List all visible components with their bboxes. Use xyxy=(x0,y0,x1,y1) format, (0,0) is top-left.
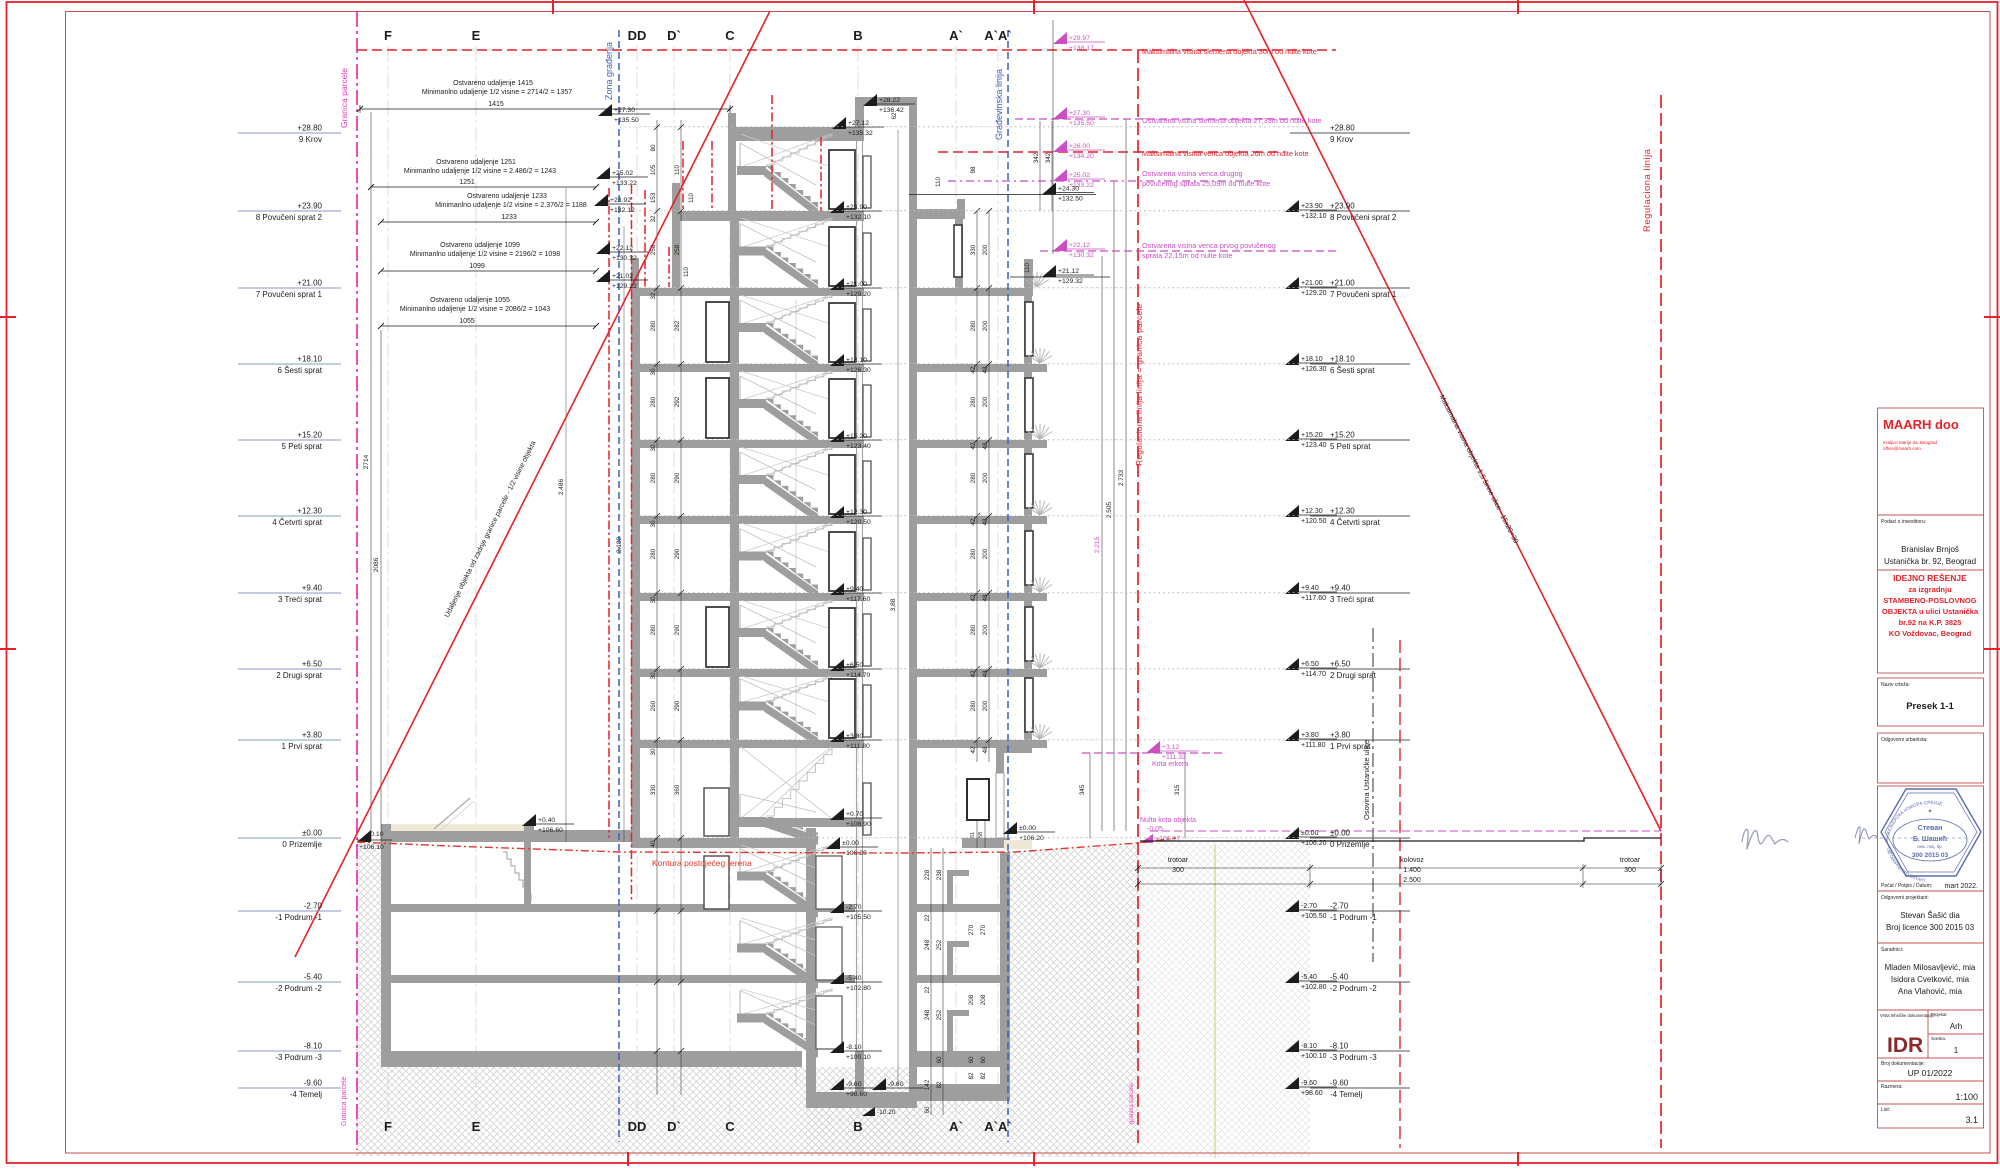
svg-text:+129.32: +129.32 xyxy=(1058,278,1083,285)
svg-text:Naziv crteža:: Naziv crteža: xyxy=(1881,682,1910,688)
svg-text:-5.40: -5.40 xyxy=(1330,973,1349,982)
svg-text:+12.30: +12.30 xyxy=(297,507,322,516)
svg-text:30: 30 xyxy=(650,444,657,452)
svg-text:Stevan Šašić dia: Stevan Šašić dia xyxy=(1900,911,1960,920)
svg-text:258: 258 xyxy=(650,244,657,255)
svg-text:+132.10: +132.10 xyxy=(1301,213,1327,220)
svg-text:300 2015 03: 300 2015 03 xyxy=(1912,852,1949,859)
svg-text:30: 30 xyxy=(650,520,657,528)
svg-text:Vrsta tehničke dokumentacije:: Vrsta tehničke dokumentacije: xyxy=(1880,1013,1936,1018)
svg-text:Стеван: Стеван xyxy=(1918,825,1943,832)
svg-text:+105.50: +105.50 xyxy=(1301,913,1327,920)
svg-text:3 Treći sprat: 3 Treći sprat xyxy=(278,595,323,604)
svg-text:40: 40 xyxy=(650,840,657,848)
svg-text:+98.60: +98.60 xyxy=(846,1091,867,1098)
svg-text:+28.22: +28.22 xyxy=(879,97,900,104)
svg-text:280: 280 xyxy=(970,320,977,331)
svg-text:200: 200 xyxy=(982,548,989,559)
svg-text:+25.02: +25.02 xyxy=(1069,172,1090,179)
svg-text:1415: 1415 xyxy=(488,101,504,108)
svg-text:1055: 1055 xyxy=(459,318,475,325)
svg-text:82: 82 xyxy=(980,1072,987,1080)
svg-text:B: B xyxy=(853,28,862,43)
svg-text:A`A`: A`A` xyxy=(984,1119,1011,1134)
svg-text:Odgovorni projektant:: Odgovorni projektant: xyxy=(1881,895,1929,901)
svg-text:32: 32 xyxy=(650,215,657,223)
svg-text:82: 82 xyxy=(936,1081,943,1089)
svg-text:+6.50: +6.50 xyxy=(302,660,323,669)
svg-text:+3.80: +3.80 xyxy=(1330,731,1351,740)
svg-text:2.733: 2.733 xyxy=(1118,469,1125,486)
svg-text:Kontura postojećeg terena: Kontura postojećeg terena xyxy=(652,858,752,868)
svg-text:-8.10: -8.10 xyxy=(1301,1043,1317,1050)
svg-text:Granica parcele: Granica parcele xyxy=(341,1076,348,1126)
svg-text:Minimanlno udaljenje 1/2 visin: Minimanlno udaljenje 1/2 visine = 2.376/… xyxy=(435,202,587,209)
svg-text:248: 248 xyxy=(924,1009,931,1020)
svg-text:Osovina Ustaničke ulice: Osovina Ustaničke ulice xyxy=(1362,740,1371,820)
svg-text:±0.00: ±0.00 xyxy=(1330,829,1351,838)
svg-text:E: E xyxy=(472,28,481,43)
svg-text:42: 42 xyxy=(970,518,977,526)
svg-text:48: 48 xyxy=(982,746,989,754)
svg-text:105: 105 xyxy=(650,164,657,175)
svg-text:200: 200 xyxy=(982,396,989,407)
svg-text:-9.60: -9.60 xyxy=(1330,1079,1349,1088)
svg-text:Regulaciona linija linija = gr: Regulaciona linija linija = granica parc… xyxy=(1134,304,1144,466)
svg-text:6 Šesti sprat: 6 Šesti sprat xyxy=(278,366,323,375)
svg-text:+22.12: +22.12 xyxy=(1069,242,1090,249)
svg-text:Isidora Cvetković, mia: Isidora Cvetković, mia xyxy=(1891,975,1970,984)
svg-text:C: C xyxy=(725,1119,735,1134)
svg-text:208: 208 xyxy=(968,994,975,1005)
svg-text:✦: ✦ xyxy=(1927,808,1932,815)
svg-text:+23.90: +23.90 xyxy=(1301,203,1323,210)
svg-text:1233: 1233 xyxy=(501,214,517,221)
svg-text:3 Treći sprat: 3 Treći sprat xyxy=(1330,595,1375,604)
svg-text:Minimanlno udaljenje 1/2 visin: Minimanlno udaljenje 1/2 visine = 2714/2… xyxy=(422,89,572,96)
svg-text:-0.05: -0.05 xyxy=(1147,826,1163,833)
svg-text:290: 290 xyxy=(674,700,681,711)
svg-text:42: 42 xyxy=(970,746,977,754)
svg-text:+15.20: +15.20 xyxy=(846,433,867,440)
svg-text:Presek 1-1: Presek 1-1 xyxy=(1906,701,1954,712)
svg-text:Ustanička br. 92, Beograd: Ustanička br. 92, Beograd xyxy=(1884,557,1976,566)
svg-text:+22.12: +22.12 xyxy=(612,245,633,252)
svg-text:Ostvarena visina venca prvog p: Ostvarena visina venca prvog povučenog xyxy=(1142,241,1276,250)
svg-text:+135.32: +135.32 xyxy=(848,130,873,137)
svg-text:+29.97: +29.97 xyxy=(1069,35,1090,42)
svg-text:110: 110 xyxy=(683,266,690,277)
svg-text:KO Voždovac, Beograd: KO Voždovac, Beograd xyxy=(1889,629,1972,638)
svg-text:42: 42 xyxy=(970,366,977,374)
svg-text:+106.60: +106.60 xyxy=(538,827,563,834)
svg-text:30: 30 xyxy=(650,748,657,756)
svg-text:2714: 2714 xyxy=(363,454,370,469)
svg-text:+9.40: +9.40 xyxy=(1330,584,1351,593)
svg-text:280: 280 xyxy=(970,472,977,483)
svg-text:+138.17: +138.17 xyxy=(1069,45,1094,52)
svg-text:Ostvarena visina slemena objek: Ostvarena visina slemena objekta 27,33m … xyxy=(1142,116,1322,125)
svg-text:330: 330 xyxy=(650,784,657,795)
svg-text:280: 280 xyxy=(650,472,657,483)
svg-text:za izgradnju: za izgradnju xyxy=(1908,585,1952,594)
svg-text:povučenog sprata 25,09m od nul: povučenog sprata 25,09m od nulte kote xyxy=(1142,179,1270,188)
svg-text:+98.60: +98.60 xyxy=(1301,1090,1323,1097)
svg-text:+3.80: +3.80 xyxy=(1301,732,1319,739)
svg-text:+106.20: +106.20 xyxy=(1019,835,1044,842)
svg-text:±0.00: ±0.00 xyxy=(842,840,859,847)
svg-text:270: 270 xyxy=(968,924,975,935)
svg-text:1099: 1099 xyxy=(469,263,485,270)
svg-text:C: C xyxy=(725,28,735,43)
svg-text:252: 252 xyxy=(936,939,943,950)
svg-text:±0.00: ±0.00 xyxy=(1301,830,1319,837)
svg-text:Ostvareno udaljenje 1099: Ostvareno udaljenje 1099 xyxy=(440,242,520,249)
svg-text:+18.10: +18.10 xyxy=(297,355,322,364)
svg-text:Б. Шашић: Б. Шашић xyxy=(1913,835,1947,843)
svg-text:1: 1 xyxy=(1954,1046,1959,1055)
svg-text:9 Krov: 9 Krov xyxy=(299,135,322,144)
svg-text:+28.80: +28.80 xyxy=(297,124,322,133)
svg-text:7 Povučeni sprat 1: 7 Povučeni sprat 1 xyxy=(1330,290,1397,299)
svg-text:315: 315 xyxy=(1174,784,1181,795)
svg-text:2.500: 2.500 xyxy=(1403,877,1421,884)
svg-text:+132.10: +132.10 xyxy=(846,214,871,221)
svg-text:D`: D` xyxy=(667,28,681,43)
svg-text:-8.10: -8.10 xyxy=(1330,1042,1349,1051)
svg-text:+108.90: +108.90 xyxy=(846,821,871,828)
svg-text:+134.20: +134.20 xyxy=(1069,153,1094,160)
svg-text:-8.10: -8.10 xyxy=(304,1042,323,1051)
svg-text:61: 61 xyxy=(970,832,976,838)
svg-text:Granica parcele: Granica parcele xyxy=(339,68,349,128)
svg-text:2 Drugi sprat: 2 Drugi sprat xyxy=(1330,671,1377,680)
svg-text:+0.40: +0.40 xyxy=(538,817,555,824)
svg-text:F: F xyxy=(384,28,392,43)
svg-text:+123.40: +123.40 xyxy=(1301,442,1327,449)
svg-text:142: 142 xyxy=(924,1079,931,1090)
svg-text:200: 200 xyxy=(982,244,989,255)
svg-text:-3 Podrum -3: -3 Podrum -3 xyxy=(275,1053,322,1062)
svg-text:+130.32: +130.32 xyxy=(1069,252,1094,259)
svg-text:+136.42: +136.42 xyxy=(879,107,904,114)
svg-text:+18.10: +18.10 xyxy=(1301,356,1323,363)
svg-text:+15.20: +15.20 xyxy=(1301,432,1323,439)
svg-text:9 Krov: 9 Krov xyxy=(1330,135,1353,144)
svg-text:Kraljice Marije 3a, Beograd: Kraljice Marije 3a, Beograd xyxy=(1883,440,1938,445)
svg-text:+21.00: +21.00 xyxy=(297,279,322,288)
svg-text:98: 98 xyxy=(970,166,977,174)
svg-text:+24.30: +24.30 xyxy=(1058,185,1079,192)
svg-text:+23.90: +23.90 xyxy=(846,204,867,211)
svg-text:Regulaciona linija: Regulaciona linija xyxy=(1642,148,1653,232)
svg-text:290: 290 xyxy=(674,624,681,635)
svg-text:Maksimalna visina slemena obje: Maksimalna visina slemena objekta 30m od… xyxy=(1142,47,1317,56)
svg-text:+21.00: +21.00 xyxy=(846,281,867,288)
svg-text:kolovoz: kolovoz xyxy=(1400,857,1424,864)
svg-text:-5.40: -5.40 xyxy=(846,975,862,982)
svg-text:42: 42 xyxy=(970,442,977,450)
svg-text:280: 280 xyxy=(650,548,657,559)
svg-text:-10.20: -10.20 xyxy=(877,1109,896,1116)
svg-text:+114.70: +114.70 xyxy=(846,672,870,679)
svg-text:+21.12: +21.12 xyxy=(1058,268,1079,275)
svg-text:1251: 1251 xyxy=(459,179,475,186)
svg-text:+117.60: +117.60 xyxy=(1301,595,1326,602)
svg-text:+114.70: +114.70 xyxy=(1301,671,1326,678)
svg-text:2.215: 2.215 xyxy=(1094,536,1101,553)
svg-text:Pečat / Potpis / Datum:: Pečat / Potpis / Datum: xyxy=(1881,883,1932,889)
svg-text:Projekat:: Projekat: xyxy=(1931,1012,1948,1017)
svg-text:+100.10: +100.10 xyxy=(846,1054,871,1061)
svg-text:±0.00: ±0.00 xyxy=(302,829,323,838)
svg-text:±0.00: ±0.00 xyxy=(1019,825,1036,832)
svg-text:+18.10: +18.10 xyxy=(1330,355,1355,364)
svg-text:360: 360 xyxy=(674,784,681,795)
svg-text:MAARH doo: MAARH doo xyxy=(1883,417,1959,432)
svg-text:+26.00: +26.00 xyxy=(1069,143,1090,150)
svg-text:+135.50: +135.50 xyxy=(614,117,639,124)
svg-text:+100.10: +100.10 xyxy=(1301,1053,1327,1060)
svg-text:22: 22 xyxy=(924,986,931,994)
svg-text:Broj dokumentacije:: Broj dokumentacije: xyxy=(1881,1061,1925,1067)
svg-text:-4 Temelj: -4 Temelj xyxy=(1330,1090,1363,1099)
svg-text:-2.70: -2.70 xyxy=(846,904,862,911)
svg-text:42: 42 xyxy=(970,594,977,602)
svg-text:290: 290 xyxy=(674,548,681,559)
svg-text:Razmera:: Razmera: xyxy=(1881,1084,1903,1090)
svg-text:+105.50: +105.50 xyxy=(846,914,871,921)
svg-text:-2.70: -2.70 xyxy=(1330,902,1349,911)
svg-text:7 Povučeni sprat 1: 7 Povučeni sprat 1 xyxy=(256,290,323,299)
svg-text:2.486: 2.486 xyxy=(558,478,565,495)
svg-text:1 Prvi sprat: 1 Prvi sprat xyxy=(1330,742,1371,751)
svg-text:инж. лиц. бр.: инж. лиц. бр. xyxy=(1917,844,1942,849)
svg-text:IDR: IDR xyxy=(1887,1034,1923,1057)
svg-text:342: 342 xyxy=(1045,152,1052,163)
svg-text:5 Peti sprat: 5 Peti sprat xyxy=(1330,442,1371,451)
svg-text:-1 Podrum -1: -1 Podrum -1 xyxy=(1330,913,1377,922)
svg-text:2 Drugi sprat: 2 Drugi sprat xyxy=(276,671,323,680)
svg-text:110: 110 xyxy=(1024,262,1031,273)
svg-text:58: 58 xyxy=(978,832,984,838)
svg-text:8 Povučeni sprat 2: 8 Povučeni sprat 2 xyxy=(1330,213,1397,222)
svg-text:+9.40: +9.40 xyxy=(302,584,323,593)
svg-text:Broj licence 300 2015 03: Broj licence 300 2015 03 xyxy=(1886,923,1975,932)
svg-text:280: 280 xyxy=(970,396,977,407)
svg-text:153: 153 xyxy=(650,192,657,203)
svg-text:60: 60 xyxy=(936,1056,943,1064)
svg-text:+102.80: +102.80 xyxy=(846,985,871,992)
svg-text:+106.10: +106.10 xyxy=(359,844,384,851)
svg-text:82: 82 xyxy=(968,1072,975,1080)
svg-text:+111.80: +111.80 xyxy=(1301,742,1326,749)
svg-text:+126.30: +126.30 xyxy=(846,367,871,374)
svg-text:Ostvareno udaljenje 1055: Ostvareno udaljenje 1055 xyxy=(430,297,510,304)
svg-text:IDEJNO REŠENJE: IDEJNO REŠENJE xyxy=(1893,572,1967,583)
svg-text:1 Prvi sprat: 1 Prvi sprat xyxy=(282,742,323,751)
svg-text:+135.50: +135.50 xyxy=(1069,120,1094,127)
svg-text:200: 200 xyxy=(982,472,989,483)
svg-text:-9.60: -9.60 xyxy=(1301,1080,1317,1087)
svg-text:+21.02: +21.02 xyxy=(612,273,633,280)
svg-text:List:: List: xyxy=(1881,1107,1890,1113)
svg-text:+129.20: +129.20 xyxy=(1301,290,1327,297)
svg-text:-1 Podrum -1: -1 Podrum -1 xyxy=(275,913,322,922)
svg-text:+0.70: +0.70 xyxy=(846,811,863,818)
svg-text:3,88: 3,88 xyxy=(890,598,897,611)
svg-text:+18.10: +18.10 xyxy=(846,357,867,364)
svg-text:+3.80: +3.80 xyxy=(846,733,863,740)
svg-text:Odgovorni urbanista:: Odgovorni urbanista: xyxy=(1881,737,1927,743)
svg-text:282: 282 xyxy=(674,320,681,331)
svg-text:Sveska:: Sveska: xyxy=(1931,1036,1946,1041)
svg-text:270: 270 xyxy=(980,924,987,935)
svg-text:+129.22: +129.22 xyxy=(612,283,637,290)
svg-text:0 Prizemlje: 0 Prizemlje xyxy=(282,840,322,849)
svg-text:-5.40: -5.40 xyxy=(304,973,323,982)
svg-text:48: 48 xyxy=(982,594,989,602)
svg-text:Ostvareno udaljenje 1415: Ostvareno udaljenje 1415 xyxy=(453,80,533,87)
svg-text:200: 200 xyxy=(982,624,989,635)
svg-text:8 Povučeni sprat 2: 8 Povučeni sprat 2 xyxy=(256,213,323,222)
svg-text:30: 30 xyxy=(650,368,657,376)
svg-text:+129.20: +129.20 xyxy=(846,291,871,298)
svg-text:DD: DD xyxy=(628,28,647,43)
svg-text:1.400: 1.400 xyxy=(1403,867,1421,874)
svg-text:280: 280 xyxy=(970,700,977,711)
svg-text:mart 2022.: mart 2022. xyxy=(1945,883,1979,890)
svg-text:-2 Podrum -2: -2 Podrum -2 xyxy=(275,984,322,993)
svg-text:48: 48 xyxy=(982,518,989,526)
svg-text:300: 300 xyxy=(1172,867,1184,874)
svg-text:1:100: 1:100 xyxy=(1955,1092,1978,1102)
svg-text:238: 238 xyxy=(936,869,943,880)
svg-text:+23.90: +23.90 xyxy=(1330,202,1355,211)
svg-text:280: 280 xyxy=(650,396,657,407)
svg-text:60: 60 xyxy=(924,1106,931,1114)
svg-text:-4 Temelj: -4 Temelj xyxy=(290,1090,323,1099)
svg-text:Branislav Brnjoš: Branislav Brnjoš xyxy=(1901,545,1959,554)
svg-text:+12.30: +12.30 xyxy=(846,509,867,516)
svg-text:42: 42 xyxy=(970,670,977,678)
svg-text:+130.32: +130.32 xyxy=(612,255,637,262)
svg-text:Građevinska linija: Građevinska linija xyxy=(994,69,1004,140)
svg-text:110: 110 xyxy=(688,192,695,203)
svg-text:260: 260 xyxy=(650,700,657,711)
svg-text:4 Četvrti sprat: 4 Četvrti sprat xyxy=(1330,518,1381,527)
svg-text:trotoar: trotoar xyxy=(1168,857,1189,864)
svg-text:+12.30: +12.30 xyxy=(1301,508,1323,515)
svg-text:Kota erkera: Kota erkera xyxy=(1152,761,1188,768)
svg-text:+3.80: +3.80 xyxy=(302,731,323,740)
svg-text:F: F xyxy=(384,1119,392,1134)
svg-text:+15.20: +15.20 xyxy=(297,431,322,440)
svg-text:208: 208 xyxy=(980,994,987,1005)
svg-text:30: 30 xyxy=(650,672,657,680)
svg-text:UP 01/2022: UP 01/2022 xyxy=(1908,1068,1953,1078)
svg-text:+117.60: +117.60 xyxy=(846,596,870,603)
svg-text:-5.40: -5.40 xyxy=(1301,974,1317,981)
svg-text:+111.80: +111.80 xyxy=(846,743,870,750)
svg-text:280: 280 xyxy=(970,624,977,635)
svg-text:E: E xyxy=(472,1119,481,1134)
svg-text:sprata 22,15m od nulte kote: sprata 22,15m od nulte kote xyxy=(1142,251,1232,260)
svg-text:258: 258 xyxy=(674,244,681,255)
svg-text:+27.30: +27.30 xyxy=(614,107,635,114)
svg-text:32: 32 xyxy=(650,292,657,300)
svg-text:2086: 2086 xyxy=(373,557,380,572)
svg-text:228: 228 xyxy=(924,869,931,880)
svg-text:280: 280 xyxy=(650,320,657,331)
svg-text:6 Šesti sprat: 6 Šesti sprat xyxy=(1330,366,1375,375)
svg-text:Minimanlno udaljenje 1/2 visin: Minimanlno udaljenje 1/2 visine = 2.486/… xyxy=(404,168,556,175)
svg-text:A`: A` xyxy=(949,28,963,43)
svg-text:5 Peti sprat: 5 Peti sprat xyxy=(282,442,323,451)
svg-text:+27.30: +27.30 xyxy=(1069,110,1090,117)
svg-text:292: 292 xyxy=(674,396,681,407)
svg-text:-3 Podrum -3: -3 Podrum -3 xyxy=(1330,1053,1377,1062)
svg-text:+3.12: +3.12 xyxy=(1162,744,1179,751)
svg-text:trotoar: trotoar xyxy=(1620,857,1641,864)
svg-text:-9.60: -9.60 xyxy=(888,1081,904,1088)
svg-text:Arh: Arh xyxy=(1950,1022,1962,1031)
svg-text:+9.40: +9.40 xyxy=(846,586,863,593)
svg-text:30: 30 xyxy=(650,596,657,604)
svg-text:+132.12: +132.12 xyxy=(610,207,635,214)
svg-text:+123.40: +123.40 xyxy=(846,443,871,450)
svg-text:+27.12: +27.12 xyxy=(848,120,869,127)
svg-text:-2 Podrum -2: -2 Podrum -2 xyxy=(1330,984,1377,993)
svg-text:110: 110 xyxy=(935,176,942,187)
svg-text:office@maarh.com: office@maarh.com xyxy=(1883,446,1921,451)
svg-text:+6.50: +6.50 xyxy=(846,662,863,669)
svg-text:+25.02: +25.02 xyxy=(612,170,633,177)
svg-text:48: 48 xyxy=(982,366,989,374)
svg-text:DD: DD xyxy=(628,1119,647,1134)
svg-text:110: 110 xyxy=(674,164,681,175)
svg-text:+102.80: +102.80 xyxy=(1301,984,1327,991)
svg-text:+120.50: +120.50 xyxy=(1301,518,1327,525)
svg-text:+28.80: +28.80 xyxy=(1330,124,1355,133)
svg-text:STAMBENO-POSLOVNOG: STAMBENO-POSLOVNOG xyxy=(1883,596,1976,605)
svg-text:+15.20: +15.20 xyxy=(1330,431,1355,440)
svg-text:+9.40: +9.40 xyxy=(1301,585,1319,592)
svg-text:252: 252 xyxy=(936,1009,943,1020)
svg-text:OBJEKTA u ulici Ustanička: OBJEKTA u ulici Ustanička xyxy=(1882,607,1979,616)
svg-text:+120.50: +120.50 xyxy=(846,519,871,526)
svg-text:280: 280 xyxy=(650,624,657,635)
svg-text:+126.30: +126.30 xyxy=(1301,366,1327,373)
svg-text:+6.50: +6.50 xyxy=(1301,661,1319,668)
svg-text:+6.50: +6.50 xyxy=(1330,660,1351,669)
svg-text:-9.60: -9.60 xyxy=(846,1081,862,1088)
svg-text:280: 280 xyxy=(970,548,977,559)
svg-text:-2.70: -2.70 xyxy=(304,902,323,911)
svg-text:+21.00: +21.00 xyxy=(1330,279,1355,288)
svg-text:80: 80 xyxy=(650,144,657,152)
svg-text:48: 48 xyxy=(982,442,989,450)
svg-text:Ana Vlahović, mia: Ana Vlahović, mia xyxy=(1898,987,1963,996)
svg-text:Ostvareno udaljenje 1233: Ostvareno udaljenje 1233 xyxy=(467,193,547,200)
svg-text:Maksimalna visina venca objekt: Maksimalna visina venca objekta 26m od n… xyxy=(1142,149,1309,158)
svg-text:+23.90: +23.90 xyxy=(297,202,322,211)
svg-text:3.1: 3.1 xyxy=(1965,1115,1978,1125)
svg-text:D`: D` xyxy=(667,1119,681,1134)
svg-text:Podaci o investitoru:: Podaci o investitoru: xyxy=(1881,519,1926,525)
svg-text:345: 345 xyxy=(1079,784,1086,795)
svg-text:-8.10: -8.10 xyxy=(846,1044,862,1051)
